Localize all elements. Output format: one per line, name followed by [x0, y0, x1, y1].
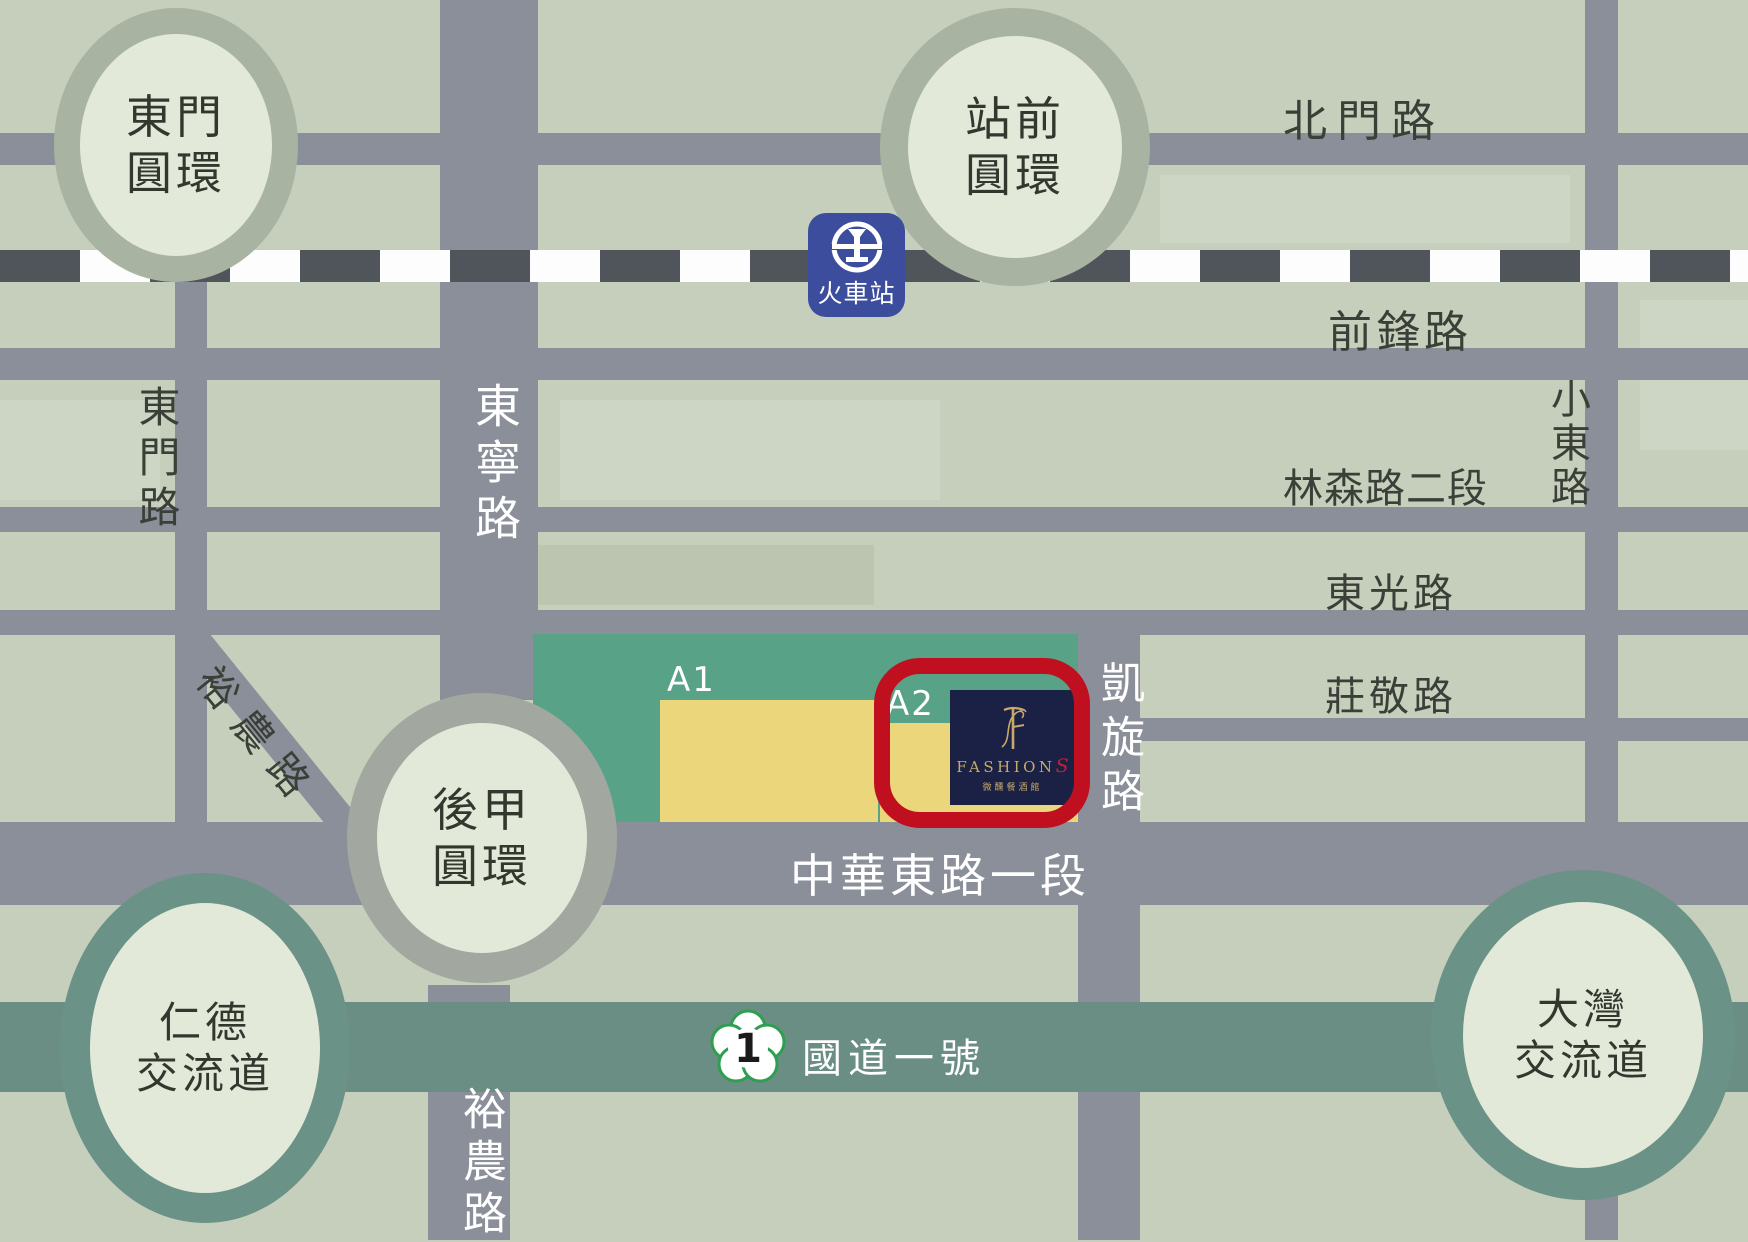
road-dongguang: [0, 610, 1748, 635]
road-label-beimen: 北門路: [1283, 85, 1445, 149]
city-block: [533, 545, 874, 605]
interchange-rende-inner: 仁德 交流道: [90, 903, 320, 1193]
roundabout-zhanqian-label: 站前 圓環: [965, 91, 1065, 203]
roundabout-zhanqian-inner: 站前 圓環: [908, 36, 1122, 258]
train-station-marker: 火車站: [808, 213, 905, 317]
road-label-dongguang: 東光路: [1325, 561, 1457, 619]
road-label-zhuangjing: 莊敬路: [1325, 664, 1457, 722]
city-block: [560, 400, 940, 500]
roundabout-houjia-label: 後甲 圓環: [432, 782, 532, 894]
road-label-qianfeng: 前鋒路: [1328, 296, 1472, 360]
road-label-xiaodong: 小東路: [1538, 378, 1596, 510]
roundabout-houjia-inner: 後甲 圓環: [377, 723, 587, 953]
train-station-label: 火車站: [817, 281, 895, 306]
road-label-yunong-south: 裕農路: [448, 1086, 512, 1242]
road-label-kaixuan: 凱旋路: [1086, 660, 1150, 822]
road-label-yunong-diagonal: 裕農路: [185, 652, 336, 819]
roundabout-dongmen-inner: 東門 圓環: [80, 34, 272, 256]
road-label-zhonghua: 中華東路一段: [790, 840, 1090, 906]
hotel-highlight-box: [874, 658, 1090, 828]
highway-1-label: 國道一號: [802, 1026, 986, 1084]
map-canvas: { "map_title": "FASHIONS hotel location …: [0, 0, 1748, 1240]
city-block: [1160, 175, 1570, 243]
building-a1: [660, 700, 878, 822]
road-label-dongmen-road: 東門路: [126, 385, 187, 535]
svg-text:1: 1: [734, 1026, 762, 1072]
plum-blossom-route-icon: 1: [706, 1006, 790, 1090]
road-label-linsen: 林森路二段: [1283, 456, 1488, 514]
interchange-dawan-label: 大灣 交流道: [1514, 984, 1652, 1086]
roundabout-dongmen-label: 東門 圓環: [126, 89, 226, 201]
interchange-dawan-inner: 大灣 交流道: [1463, 902, 1703, 1168]
zone-a1-label: A1: [667, 660, 716, 700]
interchange-rende-label: 仁德 交流道: [136, 997, 274, 1099]
road-qianfeng: [0, 348, 1748, 380]
highway-1-marker: 1: [706, 1006, 790, 1090]
road-label-dongning: 東寧路: [462, 382, 528, 550]
taiwan-railway-emblem-icon: [826, 217, 888, 279]
